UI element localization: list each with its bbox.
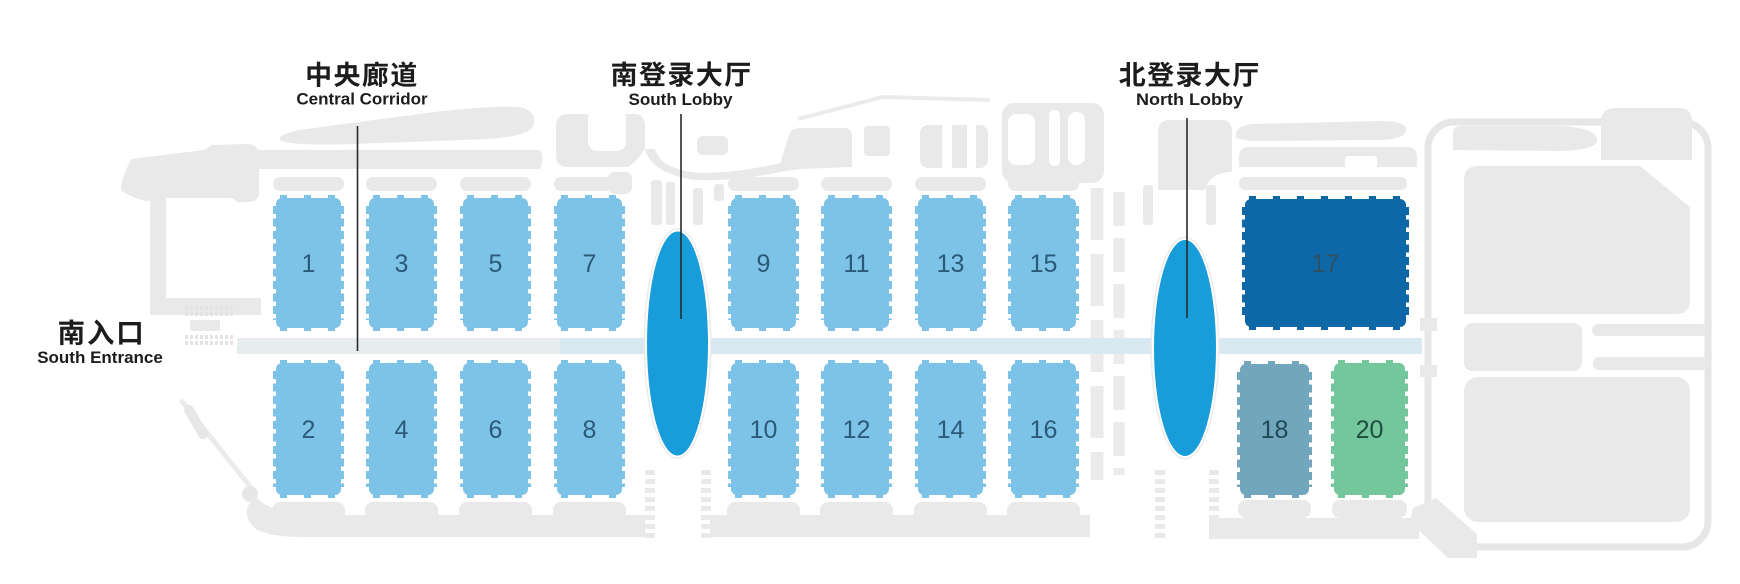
svg-text:18: 18 xyxy=(1261,416,1289,444)
svg-text:17: 17 xyxy=(1312,250,1340,278)
svg-text:5: 5 xyxy=(489,250,503,278)
svg-text:16: 16 xyxy=(1030,416,1058,444)
svg-text:South Entrance: South Entrance xyxy=(37,348,163,367)
svg-text:11: 11 xyxy=(844,250,870,278)
svg-text:3: 3 xyxy=(395,250,409,278)
svg-text:12: 12 xyxy=(843,416,871,444)
svg-text:20: 20 xyxy=(1356,416,1384,444)
svg-text:7: 7 xyxy=(583,250,597,278)
svg-text:South Lobby: South Lobby xyxy=(629,90,734,109)
svg-text:1: 1 xyxy=(302,250,316,278)
svg-text:13: 13 xyxy=(937,250,965,278)
svg-text:2: 2 xyxy=(302,416,316,444)
svg-text:Central Corridor: Central Corridor xyxy=(296,89,428,108)
svg-text:15: 15 xyxy=(1030,250,1058,278)
svg-text:North Lobby: North Lobby xyxy=(1136,90,1244,109)
svg-text:4: 4 xyxy=(395,416,409,444)
svg-text:6: 6 xyxy=(489,416,503,444)
svg-text:8: 8 xyxy=(583,416,597,444)
svg-text:10: 10 xyxy=(750,416,778,444)
svg-text:9: 9 xyxy=(757,250,771,278)
svg-text:14: 14 xyxy=(937,416,965,444)
